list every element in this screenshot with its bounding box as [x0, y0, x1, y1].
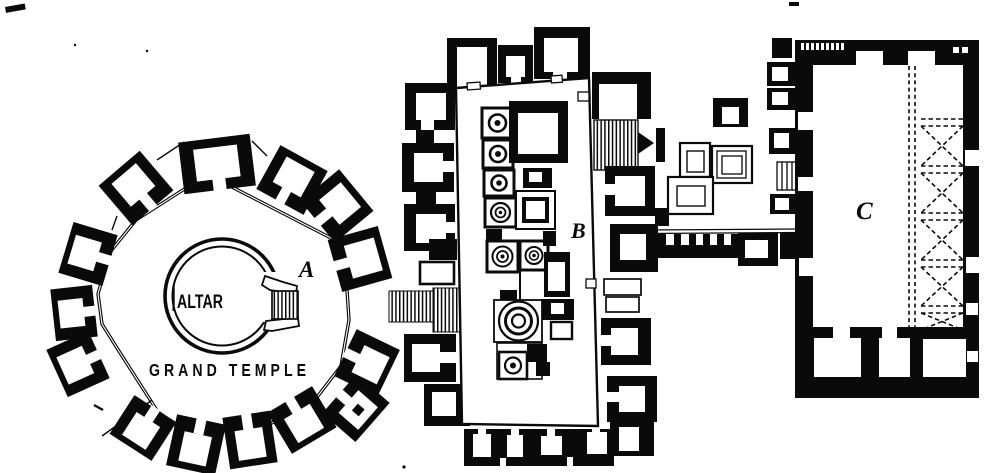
svg-text:C: C — [856, 198, 873, 225]
svg-text:ALTAR: ALTAR — [177, 292, 223, 313]
svg-text:B: B — [570, 218, 586, 243]
svg-text:A: A — [297, 257, 314, 282]
svg-text:GRAND TEMPLE: GRAND TEMPLE — [149, 360, 310, 380]
